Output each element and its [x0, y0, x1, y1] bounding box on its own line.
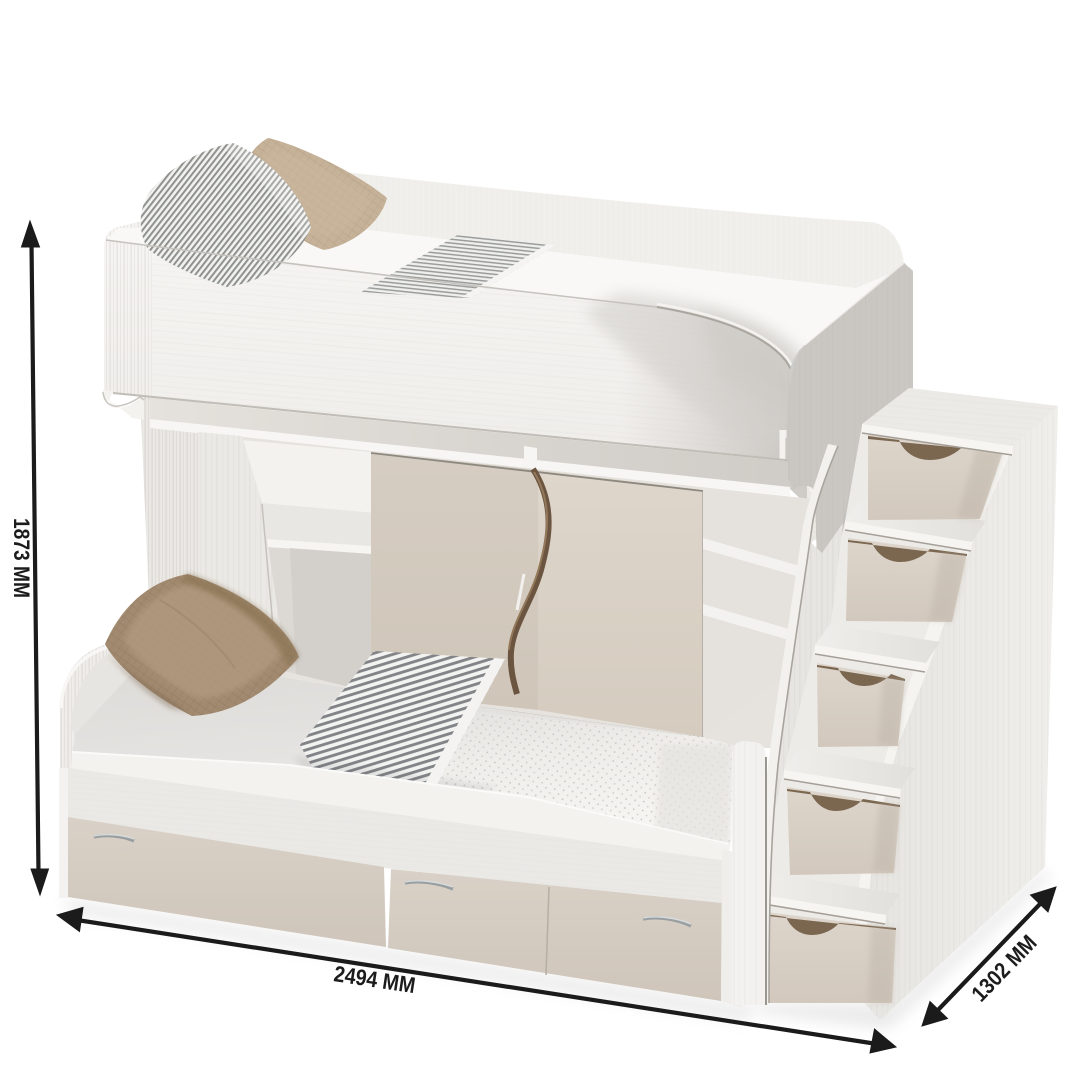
svg-text:1873 MM: 1873 MM [9, 518, 34, 598]
